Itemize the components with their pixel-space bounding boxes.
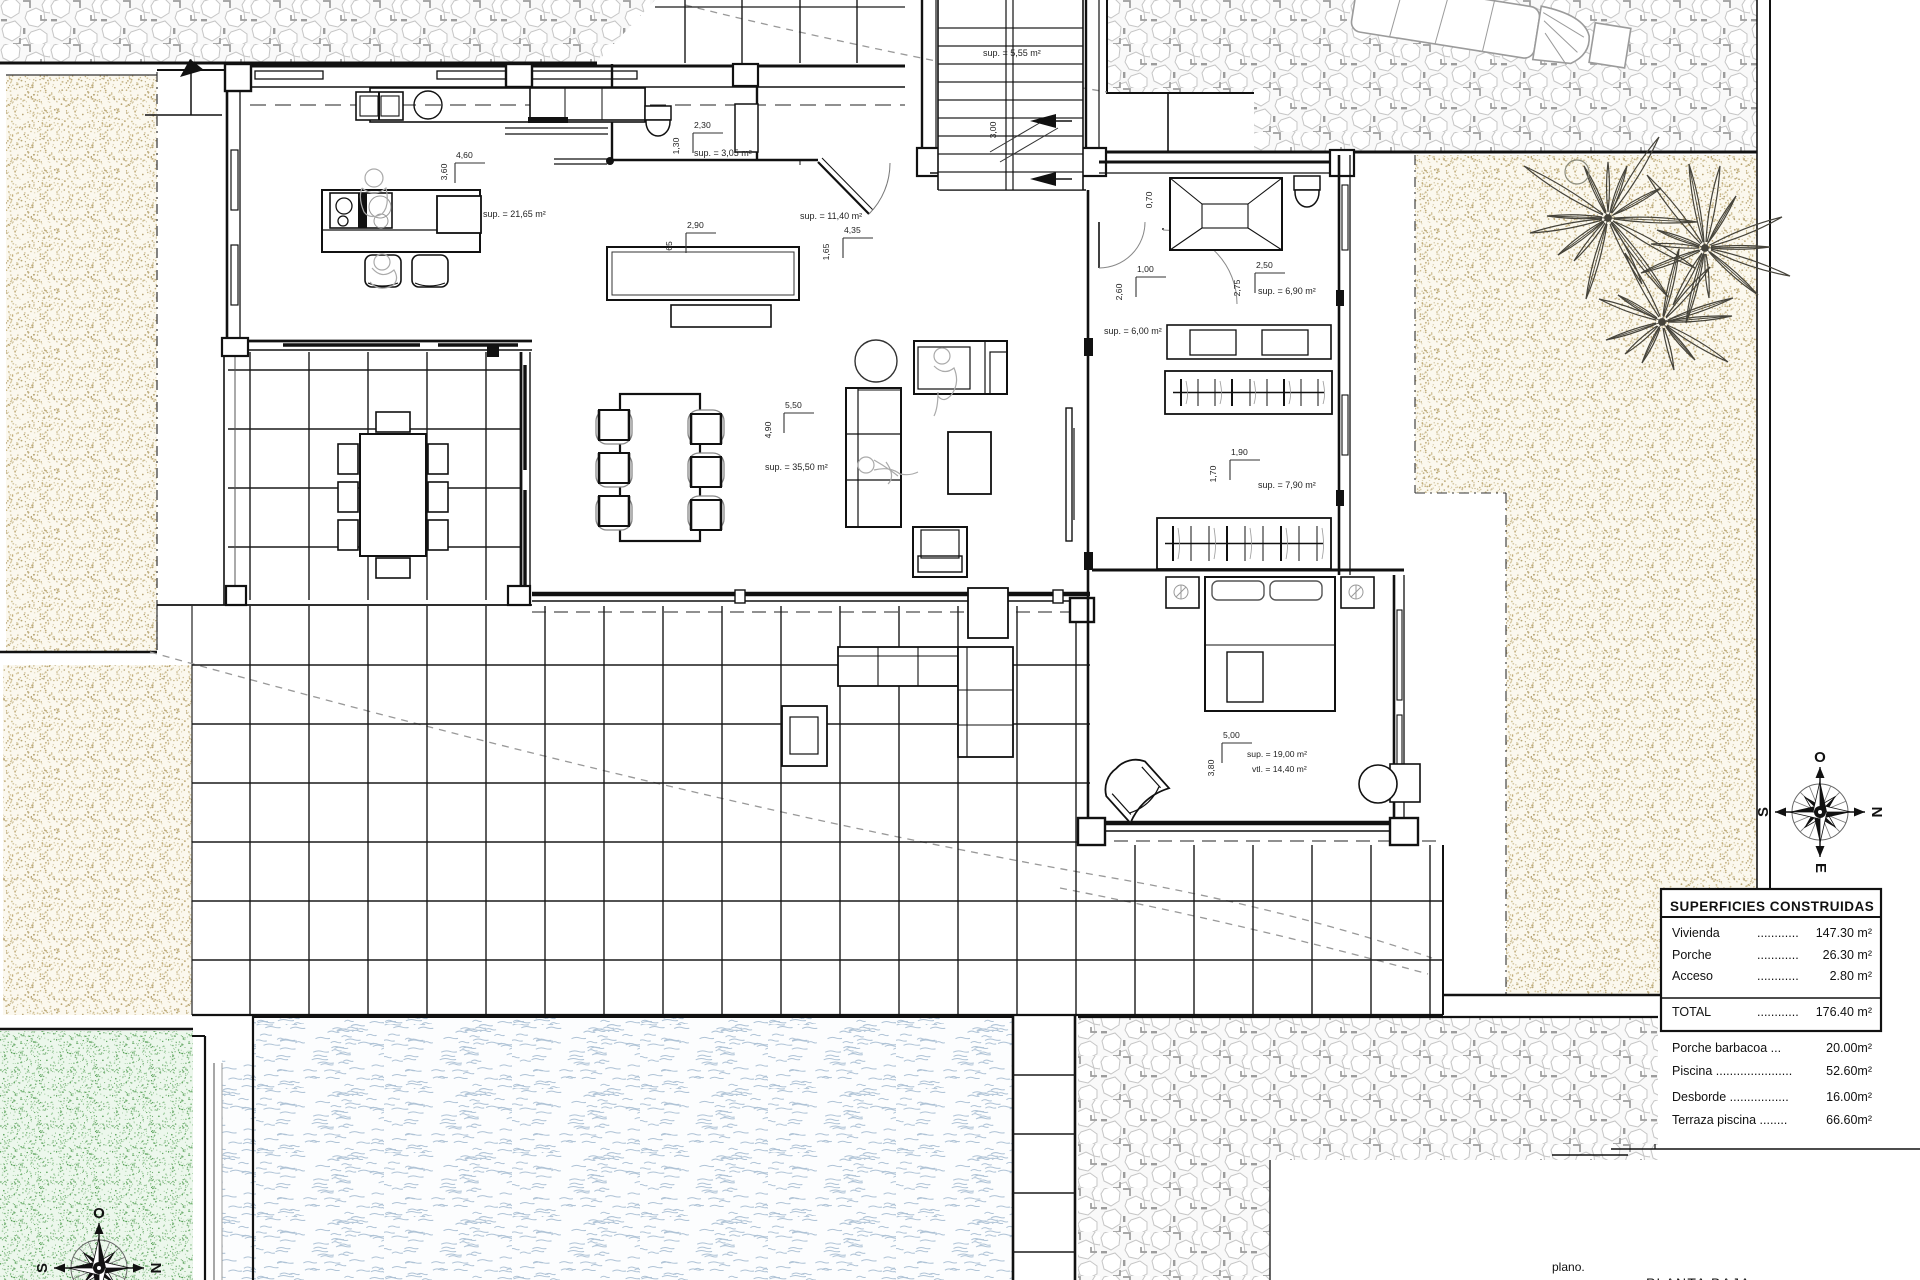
svg-text:............: ............ bbox=[1757, 969, 1799, 983]
svg-text:N: N bbox=[1868, 807, 1885, 818]
svg-text:sup. = 7,90 m²: sup. = 7,90 m² bbox=[1258, 480, 1316, 490]
svg-text:16.00m²: 16.00m² bbox=[1826, 1090, 1872, 1104]
svg-text:2,90: 2,90 bbox=[687, 220, 704, 230]
svg-text:vtl. = 14,40 m²: vtl. = 14,40 m² bbox=[1252, 764, 1307, 774]
svg-text:sup. = 6,00 m²: sup. = 6,00 m² bbox=[1104, 326, 1162, 336]
svg-text:2,30: 2,30 bbox=[694, 120, 711, 130]
svg-text:sup. = 21,65 m²: sup. = 21,65 m² bbox=[483, 209, 546, 219]
svg-text:Desborde .................: Desborde ................. bbox=[1672, 1090, 1789, 1104]
svg-text:SUPERFICIES CONSTRUIDAS: SUPERFICIES CONSTRUIDAS bbox=[1670, 899, 1874, 914]
svg-text:............: ............ bbox=[1757, 926, 1799, 940]
svg-text:2,60: 2,60 bbox=[1114, 283, 1124, 300]
svg-text:TOTAL: TOTAL bbox=[1672, 1005, 1711, 1019]
svg-text:S: S bbox=[34, 1263, 51, 1273]
svg-text:S: S bbox=[1755, 807, 1772, 817]
svg-text:............: ............ bbox=[1757, 948, 1799, 962]
svg-text:Terraza piscina ........: Terraza piscina ........ bbox=[1672, 1113, 1787, 1127]
svg-text:O: O bbox=[93, 1205, 105, 1222]
svg-text:5,50: 5,50 bbox=[785, 400, 802, 410]
svg-text:20.00m²: 20.00m² bbox=[1826, 1041, 1872, 1055]
svg-text:4,90: 4,90 bbox=[763, 421, 773, 438]
svg-text:sup. = 5,55 m²: sup. = 5,55 m² bbox=[983, 48, 1041, 58]
svg-text:sup. = 35,50 m²: sup. = 35,50 m² bbox=[765, 462, 828, 472]
svg-text:5,00: 5,00 bbox=[1223, 730, 1240, 740]
svg-text:O: O bbox=[1814, 749, 1826, 766]
svg-text:sup. = 19,00 m²: sup. = 19,00 m² bbox=[1247, 749, 1307, 759]
svg-text:Piscina ......................: Piscina ...................... bbox=[1672, 1064, 1792, 1078]
svg-text:plano.: plano. bbox=[1552, 1260, 1585, 1274]
svg-text:Acceso: Acceso bbox=[1672, 969, 1713, 983]
svg-text:1,70: 1,70 bbox=[1208, 465, 1218, 482]
svg-text:sup. = 6,90 m²: sup. = 6,90 m² bbox=[1258, 286, 1316, 296]
svg-text:0,70: 0,70 bbox=[1144, 191, 1154, 208]
svg-text:Porche barbacoa ...: Porche barbacoa ... bbox=[1672, 1041, 1781, 1055]
svg-text:N: N bbox=[147, 1263, 164, 1274]
svg-text:............: ............ bbox=[1757, 1005, 1799, 1019]
svg-text:1,90: 1,90 bbox=[1231, 447, 1248, 457]
svg-text:E: E bbox=[1812, 863, 1829, 873]
svg-text:Vivienda: Vivienda bbox=[1672, 926, 1720, 940]
svg-text:176.40 m²: 176.40 m² bbox=[1816, 1005, 1872, 1019]
svg-text:4,35: 4,35 bbox=[844, 225, 861, 235]
svg-text:1,00: 1,00 bbox=[1137, 264, 1154, 274]
svg-text:Porche: Porche bbox=[1672, 948, 1712, 962]
svg-text:sup. = 11,40 m²: sup. = 11,40 m² bbox=[800, 211, 862, 221]
svg-text:52.60m²: 52.60m² bbox=[1826, 1064, 1872, 1078]
svg-text:3,00: 3,00 bbox=[988, 121, 998, 138]
svg-text:PLANTA BAJA: PLANTA BAJA bbox=[1646, 1275, 1751, 1280]
svg-text:147.30 m²: 147.30 m² bbox=[1816, 926, 1872, 940]
svg-text:66.60m²: 66.60m² bbox=[1826, 1113, 1872, 1127]
svg-text:2,50: 2,50 bbox=[1256, 260, 1273, 270]
svg-text:3,60: 3,60 bbox=[439, 163, 449, 180]
svg-text:1,65: 1,65 bbox=[821, 243, 831, 260]
svg-text:2,75: 2,75 bbox=[1232, 279, 1242, 296]
svg-text:2.80 m²: 2.80 m² bbox=[1830, 969, 1872, 983]
svg-text:1,30: 1,30 bbox=[671, 137, 681, 154]
svg-text:4,60: 4,60 bbox=[456, 150, 473, 160]
svg-text:3,80: 3,80 bbox=[1206, 759, 1216, 776]
svg-text:sup. = 3,05 m²: sup. = 3,05 m² bbox=[694, 148, 752, 158]
svg-text:26.30 m²: 26.30 m² bbox=[1823, 948, 1872, 962]
svg-text:65: 65 bbox=[664, 241, 674, 251]
